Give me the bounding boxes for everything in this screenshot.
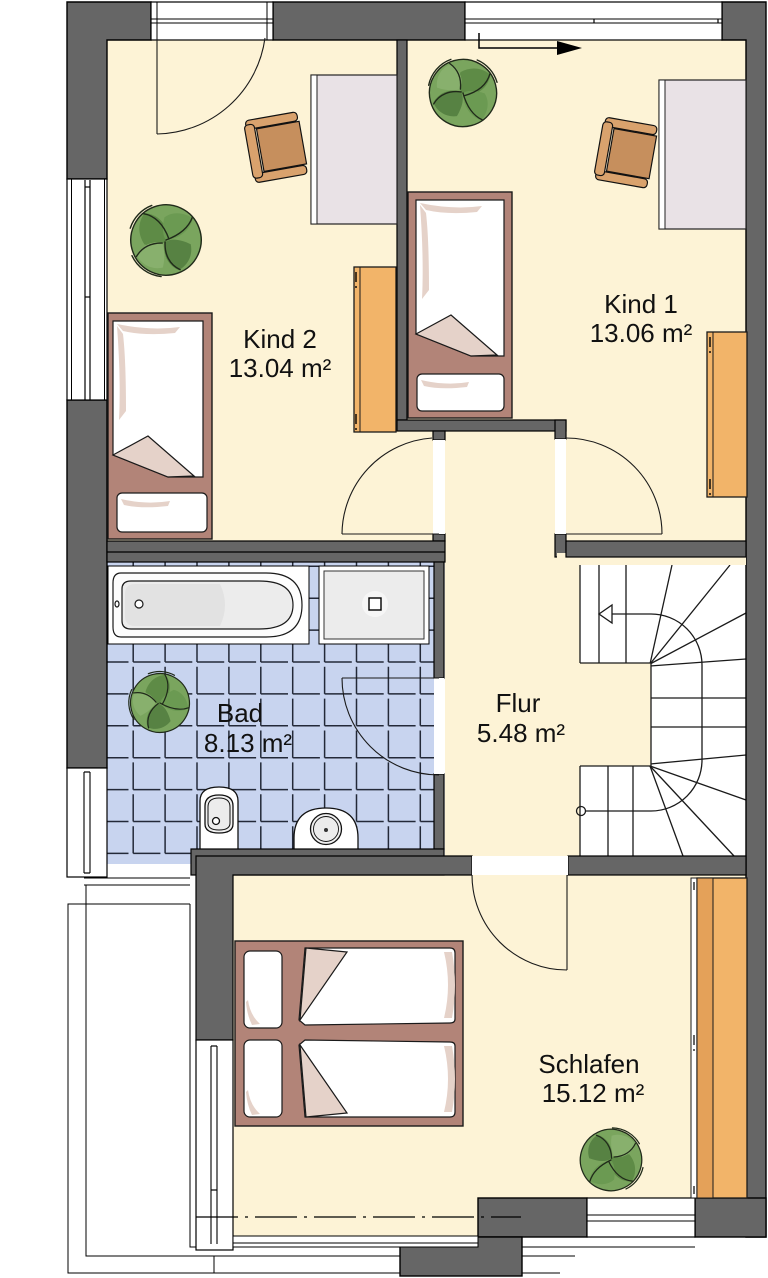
svg-text:13.04 m²: 13.04 m² bbox=[229, 353, 332, 383]
svg-text:Schlafen: Schlafen bbox=[538, 1049, 639, 1079]
svg-text:Kind 2: Kind 2 bbox=[243, 324, 317, 354]
svg-text:8.13 m²: 8.13 m² bbox=[204, 728, 292, 758]
svg-text:Kind 1: Kind 1 bbox=[604, 289, 678, 319]
svg-text:13.06 m²: 13.06 m² bbox=[590, 318, 693, 348]
svg-text:15.12 m²: 15.12 m² bbox=[542, 1078, 645, 1108]
svg-text:Bad: Bad bbox=[217, 698, 263, 728]
svg-text:5.48 m²: 5.48 m² bbox=[477, 718, 565, 748]
svg-text:Flur: Flur bbox=[496, 688, 541, 718]
